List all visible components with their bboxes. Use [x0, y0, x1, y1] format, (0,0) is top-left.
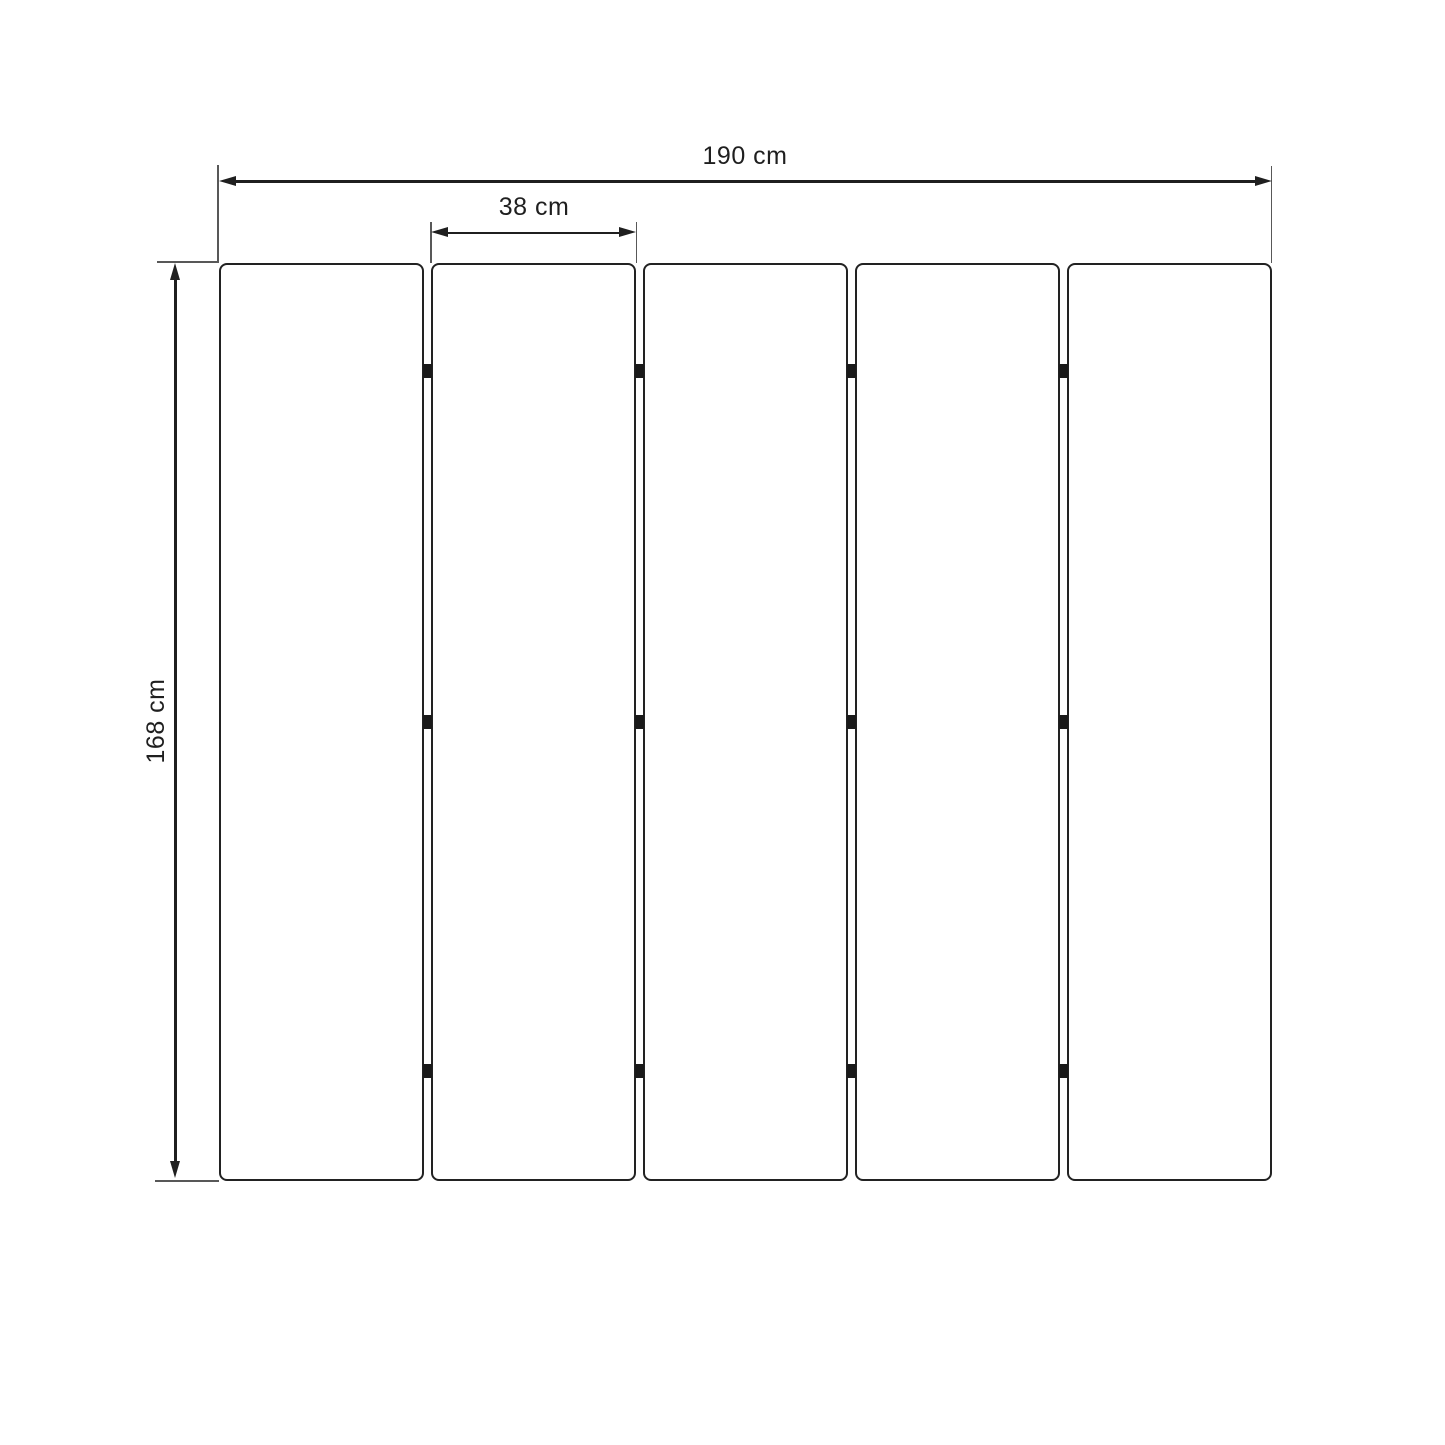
dimension-line: [230, 180, 1260, 183]
arrowhead-up-icon: [170, 263, 180, 280]
extension-line-top: [157, 261, 219, 263]
hinge: [847, 1064, 856, 1078]
panel-4: [855, 263, 1060, 1181]
hinge: [423, 364, 432, 378]
hinge: [423, 1064, 432, 1078]
hinge: [635, 1064, 644, 1078]
panel-5: [1067, 263, 1272, 1181]
hinge: [635, 715, 644, 729]
hinge: [1059, 715, 1068, 729]
panel-3: [643, 263, 848, 1181]
panel-2: [431, 263, 636, 1181]
arrowhead-right-icon: [1255, 176, 1272, 186]
arrowhead-left-icon: [431, 227, 448, 237]
hinge: [1059, 1064, 1068, 1078]
hinge: [847, 364, 856, 378]
hinge: [1059, 364, 1068, 378]
total-width-label: 190 cm: [703, 142, 788, 170]
dimension-line: [174, 276, 177, 1166]
panel-width-label: 38 cm: [499, 193, 570, 221]
panel-1: [219, 263, 424, 1181]
arrowhead-left-icon: [219, 176, 236, 186]
arrowhead-right-icon: [619, 227, 636, 237]
extension-line-bottom: [155, 1180, 219, 1182]
height-label: 168 cm: [142, 679, 170, 764]
hinge: [423, 715, 432, 729]
arrowhead-down-icon: [170, 1161, 180, 1178]
hinge: [635, 364, 644, 378]
dimension-line: [442, 232, 625, 235]
hinge: [847, 715, 856, 729]
panel-layout-diagram: 190 cm 38 cm 168 cm: [0, 0, 1445, 1445]
